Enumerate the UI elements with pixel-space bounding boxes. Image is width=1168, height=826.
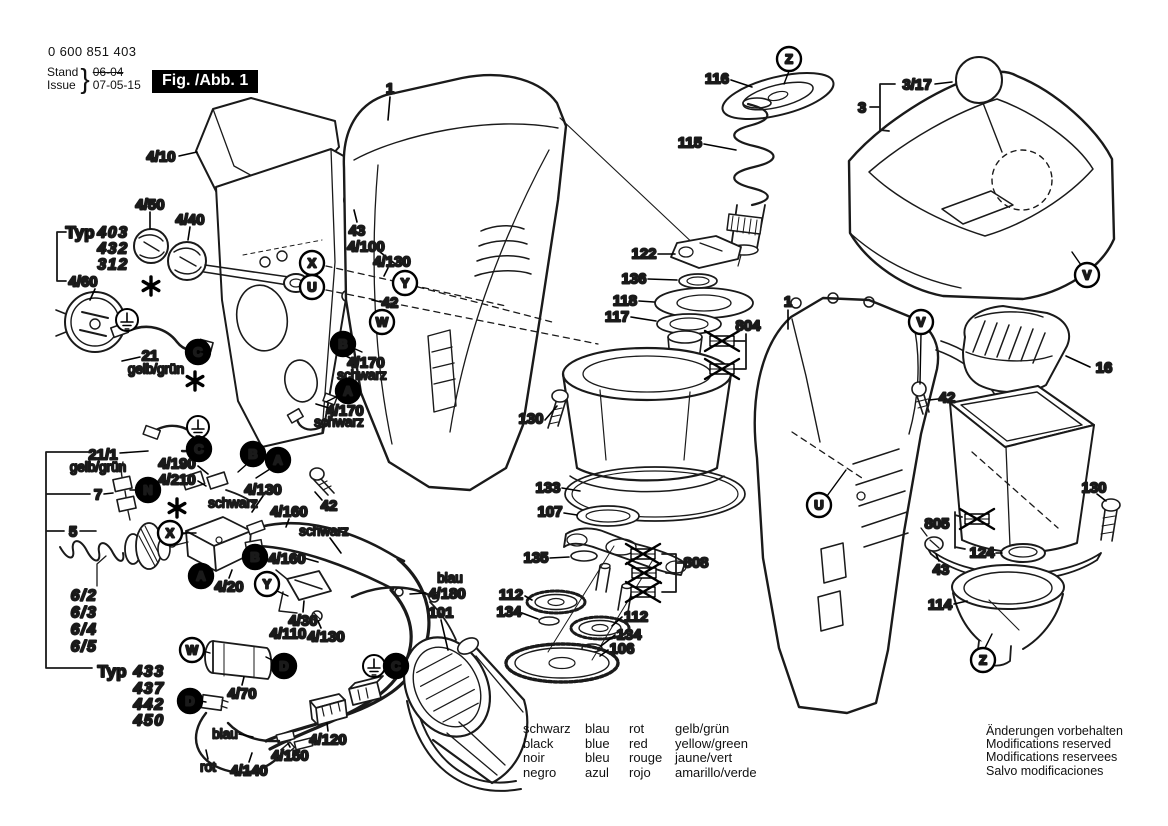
leader-line (122, 357, 140, 361)
leader-line (564, 513, 577, 515)
callout-letter: C (391, 659, 401, 674)
part-label: 117 (605, 308, 629, 325)
callout-d: D (272, 654, 296, 678)
callout-letter: Z (979, 653, 987, 668)
callout-b: B (243, 545, 267, 569)
part-label: 42 (382, 294, 399, 311)
leader-line (327, 723, 328, 731)
callout-letter: B (338, 337, 347, 352)
part-funnel-114 (952, 565, 1064, 666)
legend-cell: rojo (629, 766, 675, 781)
part-label: 450 (132, 713, 164, 730)
callout-letter: D (185, 694, 194, 709)
callout-b: B (331, 332, 355, 356)
ground-icon (116, 309, 138, 331)
part-ring-135 (571, 551, 597, 561)
part-label: 115 (678, 134, 702, 151)
callout-letter: B (248, 447, 257, 462)
callout-letter: X (166, 526, 175, 541)
legend-cell: blue (585, 737, 629, 752)
part-motor-101 (387, 602, 527, 791)
part-label: blau (437, 571, 463, 586)
part-label: 122 (631, 245, 656, 262)
leader-line (410, 593, 425, 594)
legend-cell: jaune/vert (675, 751, 757, 766)
callout-n: N (136, 478, 160, 502)
callout-letter: Y (263, 577, 272, 592)
part-label: 4/120 (309, 731, 347, 748)
part-label: 4/60 (68, 273, 97, 290)
part-screw-130-left (548, 390, 568, 428)
part-label: 135 (523, 549, 548, 566)
leader-line (242, 677, 244, 685)
color-legend: schwarz blau rot gelb/grün black blue re… (523, 722, 757, 780)
part-label: 437 (132, 681, 164, 698)
part-label: 4/130 (373, 253, 411, 270)
part-label: 432 (96, 241, 128, 258)
part-label: 112 (624, 608, 648, 625)
leader-line (522, 613, 538, 619)
legend-cell: black (523, 737, 585, 752)
part-label: 6/4 (71, 622, 98, 639)
callout-x: X (158, 521, 182, 545)
leader-line (229, 570, 232, 578)
part-ring-124 (1001, 544, 1045, 562)
part-label: 43 (933, 561, 950, 578)
callout-a: A (189, 564, 213, 588)
part-label: blau (212, 727, 238, 742)
legend-cell: bleu (585, 751, 629, 766)
leader-line (318, 621, 321, 628)
callout-c: C (187, 437, 211, 461)
part-label: 4/40 (175, 211, 204, 228)
part-label: rot (200, 760, 216, 775)
leader-line (104, 493, 113, 494)
parts-diagram-page: 0 600 851 403 Stand Issue } 06-04 07-05-… (0, 0, 1168, 826)
part-label: 312 (97, 257, 128, 274)
part-label: 4/210 (158, 471, 196, 488)
part-knob-4-40 (168, 242, 206, 280)
callout-letter: W (186, 643, 199, 658)
callout-d: D (178, 689, 202, 713)
part-label: 4/10 (146, 148, 175, 165)
part-label: 42 (321, 497, 338, 514)
part-label: 4/140 (230, 762, 268, 779)
part-label: gelb/grün (70, 460, 126, 475)
callout-z: Z (971, 648, 995, 672)
legend-cell: negro (523, 766, 585, 781)
callout-letter: B (250, 550, 259, 565)
callout-leader (920, 334, 921, 384)
part-label: 124 (969, 544, 995, 561)
part-label: 134 (496, 603, 522, 620)
callout-letter: U (307, 280, 316, 295)
part-label: 3 (858, 99, 866, 116)
part-label: 16 (1096, 359, 1113, 376)
part-label: 130 (518, 410, 543, 427)
note-line: Salvo modificaciones (986, 765, 1123, 778)
modifications-note: Änderungen vorbehalten Modifications res… (986, 725, 1123, 778)
leader-line (731, 80, 752, 87)
callout-v: V (909, 310, 933, 334)
part-worm-115 (727, 98, 774, 266)
crossed-icon (705, 331, 739, 351)
callout-letter: A (273, 453, 283, 468)
part-label: 433 (132, 664, 164, 681)
callout-w: W (370, 310, 394, 334)
asterisk-icon (143, 277, 159, 295)
part-label: 5 (69, 523, 77, 540)
callout-letter: Z (785, 52, 793, 67)
part-label: 4/160 (268, 550, 306, 567)
part-disc-118 (655, 288, 753, 318)
asterisk-icon (187, 372, 203, 390)
leader-line (648, 279, 677, 280)
part-label: 4/20 (214, 578, 243, 595)
part-label: 106 (609, 640, 634, 657)
leader-line (929, 399, 938, 400)
part-knob-4-50 (134, 229, 168, 263)
part-label: 808 (683, 554, 708, 571)
leader-line (330, 538, 341, 553)
leader-line (249, 753, 252, 762)
callout-a: A (336, 379, 360, 403)
part-label: 4/130 (307, 628, 345, 645)
part-screw-130-right (1101, 499, 1120, 541)
crossed-icon (626, 582, 660, 602)
leader-line (1066, 356, 1090, 367)
part-label: 1 (784, 293, 792, 310)
part-label: 136 (621, 270, 646, 287)
legend-cell: noir (523, 751, 585, 766)
part-label: 6/3 (71, 605, 98, 622)
part-insert-16 (963, 306, 1069, 392)
callout-letter: Y (401, 276, 410, 291)
part-label: 6/2 (71, 588, 98, 605)
callout-c: C (186, 340, 210, 364)
part-disc-116 (718, 64, 838, 128)
part-connector-4-120 (310, 676, 383, 725)
ground-icon (363, 655, 385, 677)
callout-w: W (180, 638, 204, 662)
part-hopper-cover-3 (849, 57, 1114, 299)
callout-a: A (266, 448, 290, 472)
callout-leader (256, 469, 270, 478)
part-switch-4-60 (56, 292, 125, 352)
part-label: 4/110 (270, 625, 307, 642)
callout-letter: A (343, 384, 353, 399)
legend-cell: yellow/green (675, 737, 757, 752)
callout-v: V (1075, 263, 1099, 287)
leader-line (188, 227, 190, 240)
part-label: 101 (428, 604, 453, 621)
part-label: 4/130 (244, 481, 282, 498)
callout-u: U (807, 493, 831, 517)
part-label: 403 (96, 225, 128, 242)
callout-y: Y (393, 271, 417, 295)
callout-letter: C (194, 442, 204, 457)
callout-letter: V (917, 315, 926, 330)
callout-leader (238, 464, 247, 472)
ground-icon (187, 416, 209, 438)
callout-x: X (300, 251, 324, 275)
part-label: 42 (939, 389, 956, 406)
legend-cell: azul (585, 766, 629, 781)
part-label: Typ (66, 223, 95, 242)
part-label: 116 (705, 70, 729, 87)
callout-letter: V (1083, 268, 1092, 283)
part-label: 7 (94, 486, 102, 503)
part-washer-107 (577, 506, 639, 526)
legend-cell: blau (585, 722, 629, 737)
leader-line (179, 152, 197, 156)
part-label: 442 (132, 697, 164, 714)
legend-cell: amarillo/verde (675, 766, 757, 781)
part-label: 4/70 (227, 685, 256, 702)
legend-cell: rot (629, 722, 675, 737)
part-label: 6/5 (71, 639, 98, 656)
callout-letter: D (279, 659, 288, 674)
leader-line (206, 750, 208, 759)
leader-line (120, 451, 148, 453)
part-label: 4/180 (428, 585, 466, 602)
part-label: 112 (499, 586, 523, 603)
leader-line (631, 317, 656, 321)
part-screw-42-lower (310, 468, 334, 495)
callout-u: U (300, 275, 324, 299)
part-label: Typ (98, 662, 127, 681)
part-washer-134-left (539, 617, 559, 625)
leader-line (304, 558, 318, 562)
part-label: 1 (386, 80, 394, 97)
part-label: 118 (613, 292, 637, 309)
legend-cell: rouge (629, 751, 675, 766)
part-label: 4/160 (270, 503, 308, 520)
part-lever-122 (671, 236, 741, 268)
leader-line (303, 601, 304, 612)
part-label: 804 (735, 317, 761, 334)
part-label: 805 (924, 515, 949, 532)
callout-letter: C (193, 345, 203, 360)
legend-cell: gelb/grün (675, 722, 757, 737)
legend-cell: schwarz (523, 722, 585, 737)
legend-cell: red (629, 737, 675, 752)
part-gear-106 (506, 644, 618, 682)
part-label: schwarz (314, 415, 364, 430)
callout-letter: U (814, 498, 823, 513)
leader-line (562, 488, 580, 491)
part-label: schwarz (299, 524, 349, 539)
part-label: 4/50 (135, 196, 164, 213)
part-label: 130 (1081, 479, 1106, 496)
part-label: 3/17 (902, 76, 931, 93)
note-line: Modifications reservees (986, 751, 1123, 764)
asterisk-icon (169, 499, 185, 517)
leader-line (704, 144, 736, 150)
part-pins (596, 564, 632, 613)
part-label: gelb/grün (128, 362, 184, 377)
part-label: 43 (349, 222, 366, 239)
exploded-view-canvas: 14/104/504/40434/1004/130424/170schwarz4… (0, 0, 1168, 826)
leader-line (639, 301, 654, 302)
part-label: 133 (535, 479, 560, 496)
leader-line (935, 82, 952, 84)
callout-letter: W (376, 315, 389, 330)
callout-c: C (384, 654, 408, 678)
callout-y: Y (255, 572, 279, 596)
callout-z: Z (777, 47, 801, 71)
part-label: 114 (928, 596, 953, 613)
part-label: 107 (537, 503, 562, 520)
callout-letter: X (308, 256, 317, 271)
part-ring-136 (679, 274, 717, 288)
leader-line (550, 557, 569, 558)
part-label: 4/150 (271, 747, 309, 764)
callout-letter: N (143, 483, 152, 498)
callout-b: B (241, 442, 265, 466)
callout-letter: A (196, 569, 206, 584)
part-gear-112-left (527, 591, 585, 613)
